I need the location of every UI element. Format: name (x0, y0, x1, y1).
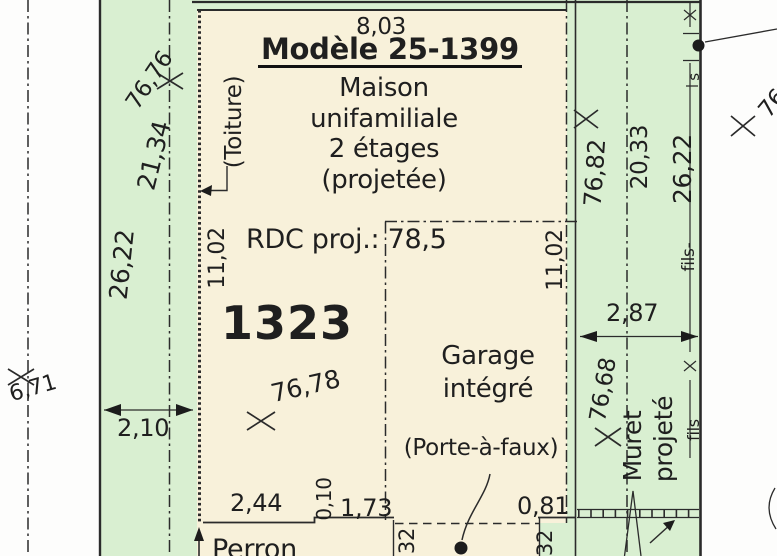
porch-label: Perron (212, 536, 297, 556)
elevation-sw: 6,71 (0, 369, 66, 408)
dim-right-setback: 2,87 (606, 301, 658, 326)
dim-bottom-step: 0,10 (314, 474, 335, 524)
dim-fence-length: 26,22 (670, 122, 696, 216)
roof-label: (Toiture) (222, 52, 246, 192)
muret-label-line1: Muret (620, 408, 646, 484)
dim-cantilever-right: 32 (534, 526, 556, 556)
cantilever-label: (Porte-à-faux) (389, 436, 573, 460)
survey-site-plan: 8,03 Modèle 25-1399 Maison unifamiliale … (0, 0, 777, 556)
corner-tie-line (705, 29, 777, 42)
dim-cantilever-left: 32 (396, 524, 418, 556)
house-description-line1: Maison (252, 73, 516, 104)
dim-bottom-right: 0,81 (517, 494, 569, 519)
muret-label-line2: projeté (651, 390, 677, 488)
elevation-right-margin: 76 (750, 80, 777, 128)
rdc-elevation-label: RDC proj.: 78,5 (246, 226, 447, 254)
dim-bottom-mid: 1,73 (340, 496, 392, 521)
dim-right-wall: 11,02 (544, 224, 567, 296)
model-title: Modèle 25-1399 (258, 34, 510, 68)
fence-label: fils- (681, 230, 699, 284)
house-description: Maison unifamiliale 2 étages (projetée) (252, 73, 516, 195)
elevation-cross-right-margin (731, 116, 755, 136)
house-description-line4: (projetée) (252, 165, 516, 196)
dim-left-setback: 2,10 (117, 416, 169, 441)
model-title-text: Modèle 25-1399 (258, 34, 522, 68)
house-description-line2: unifamiliale (252, 104, 516, 135)
garage-label-line2: intégré (420, 373, 556, 406)
elevation-ne: 76,82 (580, 130, 611, 216)
dim-left-wall: 11,02 (206, 222, 229, 294)
dim-bottom-left: 2,44 (230, 491, 282, 516)
lot-number: 1323 (221, 299, 353, 347)
dim-right-boundary-1: 20,33 (628, 122, 652, 192)
fence-label-2: fils (686, 408, 703, 452)
house-description-line3: 2 étages (252, 134, 516, 165)
garage-label-line1: Garage (420, 340, 556, 373)
garage-label: Garage intégré (420, 340, 556, 406)
fence-letter: s (687, 69, 703, 85)
edge-arc (769, 488, 776, 529)
